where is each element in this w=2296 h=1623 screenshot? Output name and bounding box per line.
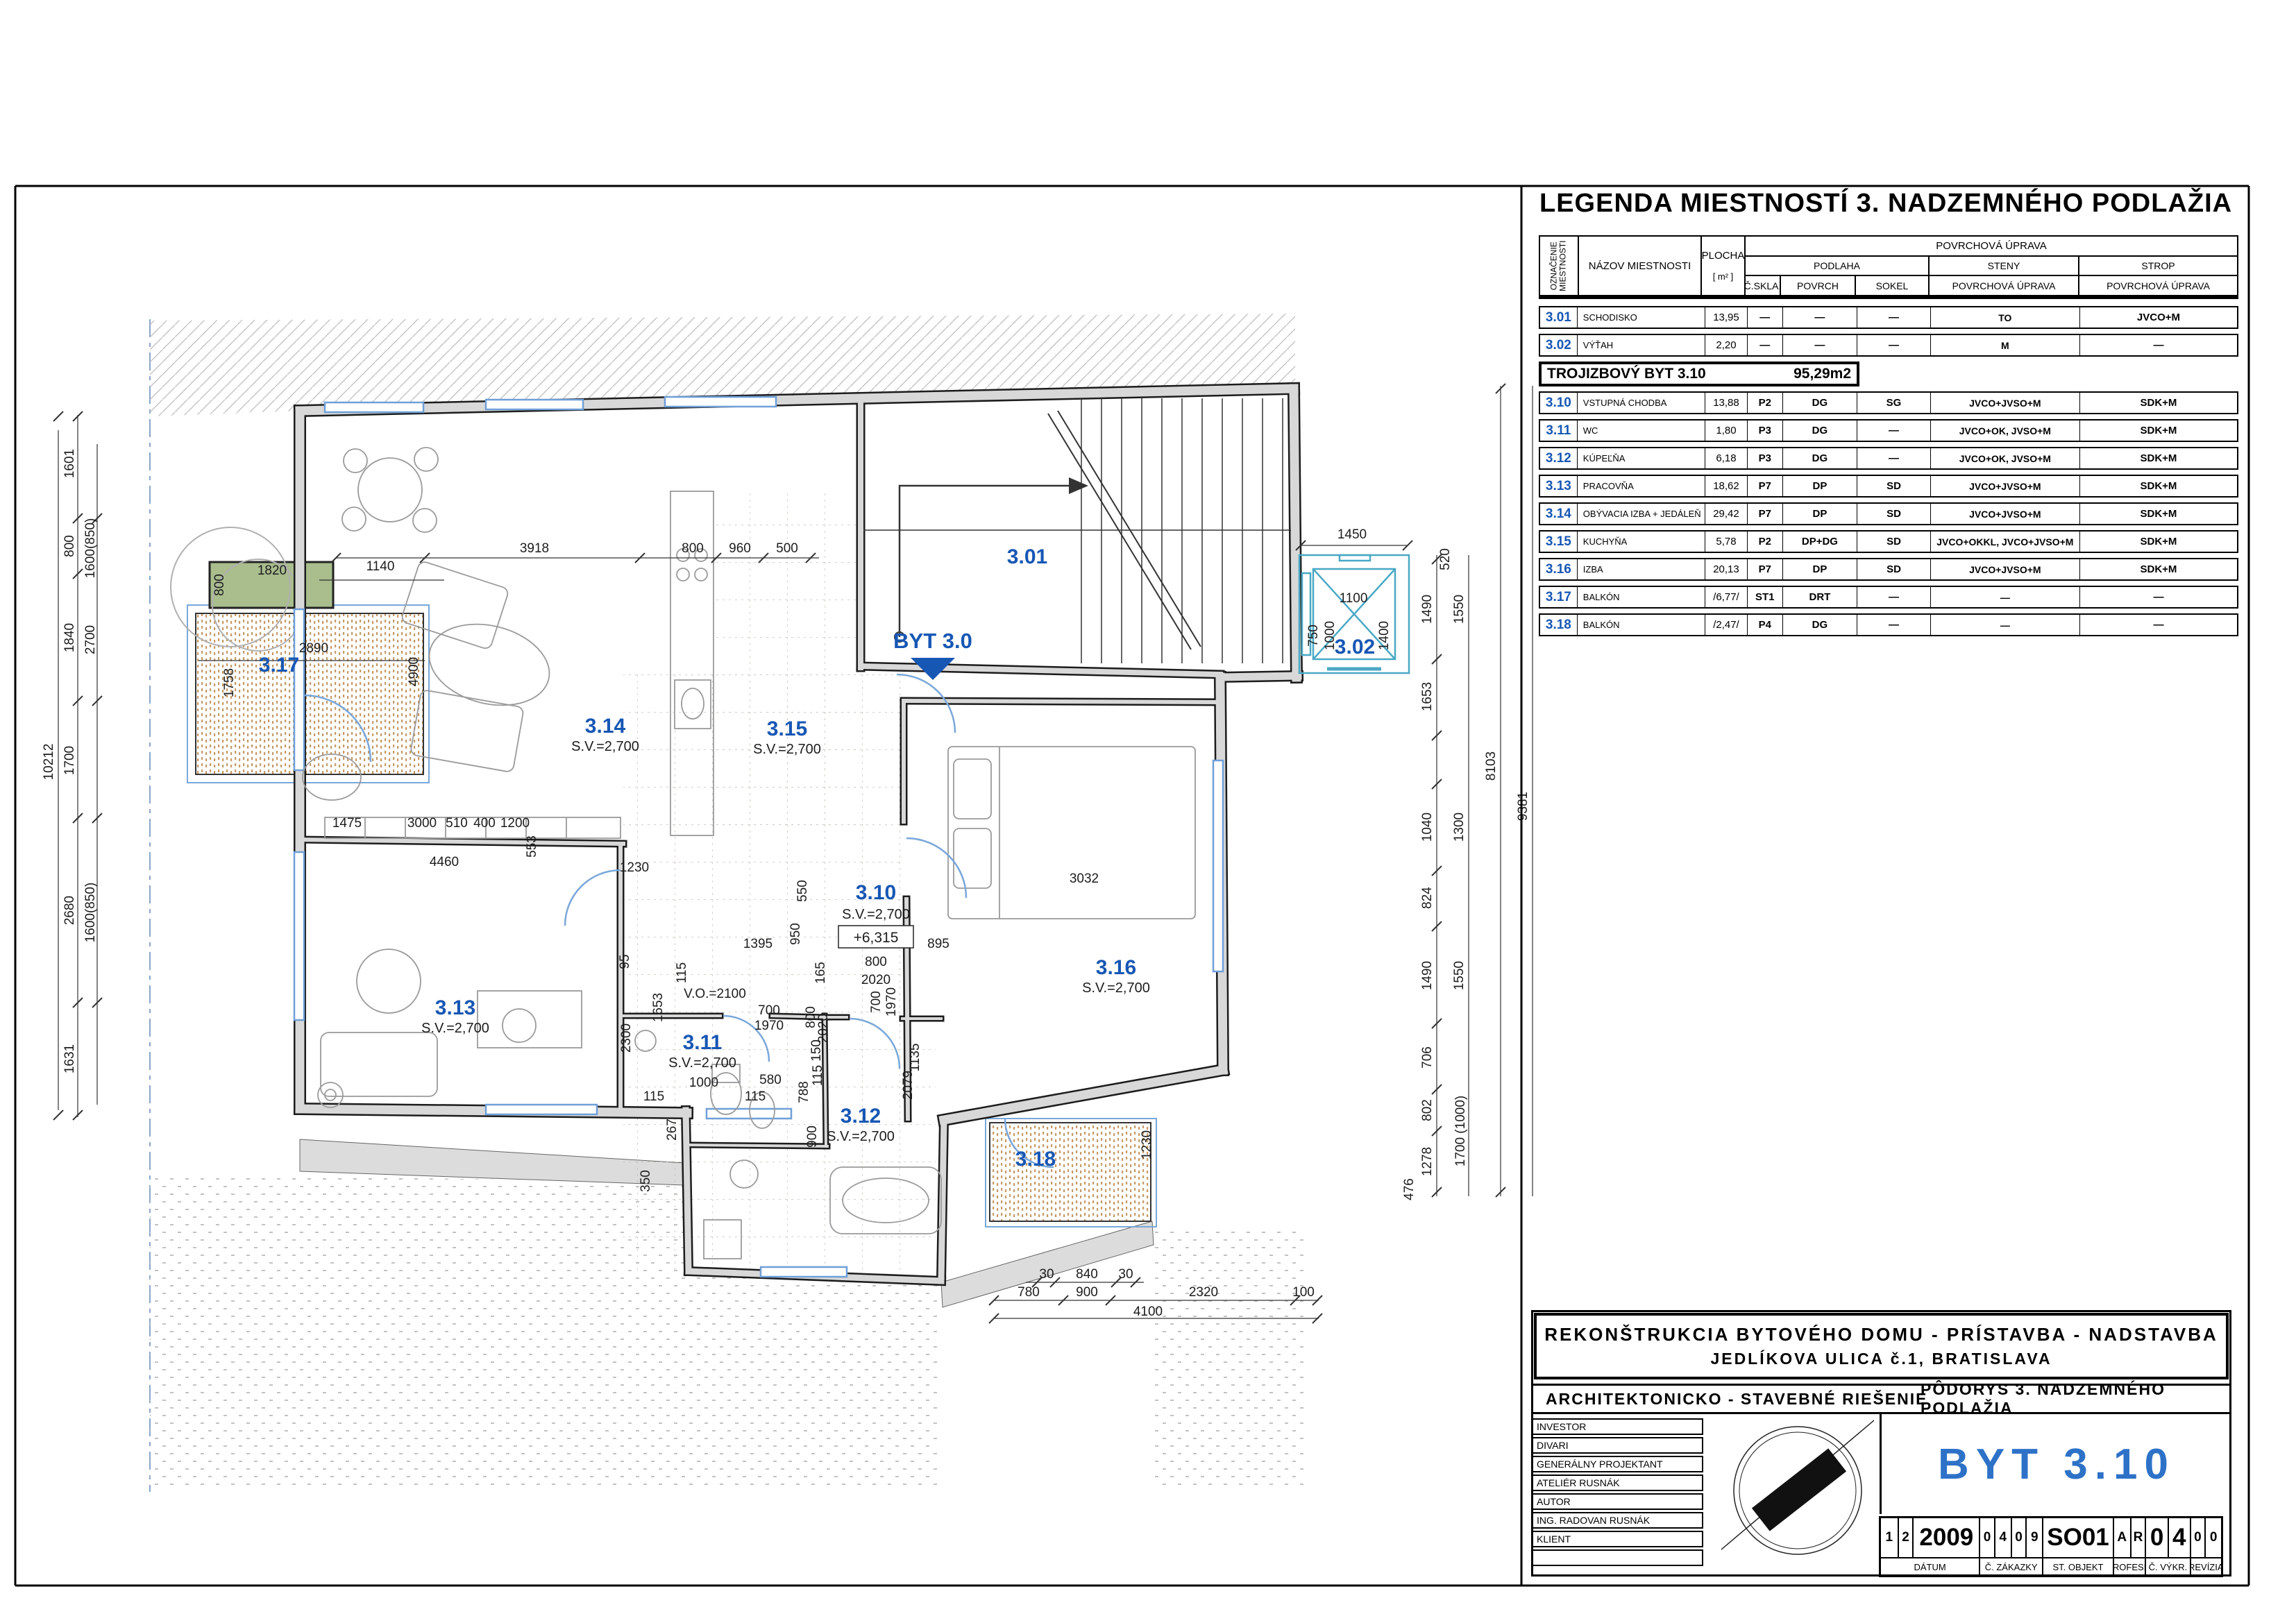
- dimension-label: 706: [1420, 1046, 1435, 1069]
- legend-cell: 29,42: [1705, 504, 1748, 524]
- dimension-label: 1550: [1452, 595, 1467, 624]
- dimension-label: 700: [758, 1003, 780, 1018]
- legend-row-3.14: 3.14OBÝVACIA IZBA + JEDÁLEŇ29,42P7DPSDJV…: [1539, 502, 2238, 525]
- legend-cell: —: [1748, 307, 1783, 328]
- legend-row-3.02: 3.02VÝŤAH2,20———M—: [1539, 334, 2238, 357]
- dimension-label: 780: [1018, 1285, 1040, 1300]
- dimension-label: 800: [212, 574, 227, 596]
- info-row: [1531, 1549, 1703, 1566]
- dimension-label: 4460: [430, 855, 459, 869]
- legend-cell: P2: [1748, 393, 1783, 413]
- dimension-label: 9381: [1516, 792, 1530, 821]
- dimension-label: 4100: [1133, 1305, 1163, 1319]
- legend-table: OZNAČENIE MIESTNOSTI NÁZOV MIESTNOSTI PL…: [1539, 235, 2238, 641]
- dimension-label: 2300: [619, 1023, 634, 1053]
- room-label: 3.18: [1015, 1148, 1056, 1171]
- legend-cell: OBÝVACIA IZBA + JEDÁLEŇ: [1578, 504, 1705, 524]
- dimension-label: 824: [1420, 887, 1435, 909]
- col-ceiling: STROP: [2079, 257, 2237, 275]
- col-walls: STENY: [1930, 257, 2079, 275]
- room-label: 3.17: [259, 654, 299, 677]
- legend-cell: 3.16: [1540, 559, 1578, 579]
- band-area: 95,29m2: [1793, 366, 1851, 382]
- legend-cell: —: [1783, 307, 1858, 328]
- legend-cell: —: [1857, 615, 1931, 635]
- room-label: 3.12: [841, 1105, 881, 1128]
- dimension-label: 1970: [884, 987, 899, 1017]
- band-label: TROJIZBOVÝ BYT 3.10: [1542, 366, 1706, 382]
- dimension-label: 960: [729, 541, 751, 556]
- dimension-label: 553: [525, 835, 539, 858]
- dimension-label: 1230: [1140, 1130, 1154, 1159]
- room-label: +6,315: [854, 930, 899, 946]
- couch: [321, 1033, 437, 1096]
- legend-cell: DP: [1783, 504, 1858, 524]
- legend-cell: P3: [1748, 448, 1783, 468]
- legend-cell: SCHODISKO: [1578, 307, 1705, 328]
- legend-cell: DG: [1783, 420, 1858, 441]
- legend-cell: /2,47/: [1705, 615, 1748, 635]
- legend-cell: DRT: [1783, 587, 1858, 607]
- dimension-label: 900: [1076, 1285, 1098, 1300]
- dimension-label: 1653: [651, 993, 666, 1022]
- dimension-label: 150: [809, 1039, 824, 1062]
- dimension-label: 350: [639, 1170, 653, 1192]
- dimension-label: 900: [805, 1125, 820, 1148]
- dimension-label: 3918: [520, 541, 549, 556]
- legend-row-3.13: 3.13PRACOVŇA18,62P7DPSDJVCO+JVSO+MSDK+M: [1539, 475, 2238, 498]
- section-band: ARCHITEKTONICKO - STAVEBNÉ RIEŠENIE PÔDO…: [1531, 1384, 2231, 1414]
- dimension-label: 2320: [1189, 1285, 1218, 1300]
- dimension-label: 2020: [861, 973, 890, 987]
- dimension-label: 4900: [407, 657, 421, 686]
- legend-cell: 3.18: [1540, 615, 1578, 635]
- dimension-label: 400: [473, 816, 496, 831]
- legend-row-3.18: 3.18BALKÓN/2,47/P4DG———: [1539, 613, 2238, 636]
- legend-cell: 3.12: [1540, 448, 1578, 468]
- legend-cell: SD: [1857, 559, 1931, 579]
- legend-title: LEGENDA MIESTNOSTÍ 3. NADZEMNÉHO PODLAŽI…: [1539, 189, 2232, 219]
- info-row: GENERÁLNY PROJEKTANT: [1531, 1456, 1703, 1472]
- legend-cell: BALKÓN: [1578, 587, 1705, 607]
- room-label: S.V.=2,700: [842, 907, 910, 922]
- col-area-unit: [ m² ]: [1713, 271, 1734, 282]
- dimension-label: 1820: [258, 563, 287, 578]
- dimension-label: 1758: [222, 668, 237, 697]
- legend-cell: KUCHYŇA: [1578, 532, 1705, 552]
- walkway-band: [941, 1221, 1154, 1307]
- room-label: S.V.=2,700: [421, 1021, 489, 1036]
- legend-cell: DP: [1783, 476, 1858, 496]
- room-label: S.V.=2,700: [1082, 980, 1150, 996]
- dimension-label: 750: [1306, 624, 1321, 647]
- info-row: ATELIÉR RUSNÁK: [1531, 1475, 1703, 1491]
- dimension-label: 510: [446, 816, 468, 831]
- dimension-label: 1653: [1420, 682, 1435, 711]
- dimension-label: 1200: [500, 816, 530, 831]
- legend-cell: JVCO+JVSO+M: [1931, 559, 2080, 579]
- legend-cell: —: [1857, 420, 1931, 441]
- apartment-band: TROJIZBOVÝ BYT 3.1095,29m2: [1539, 362, 1859, 386]
- staircase: [863, 398, 1291, 663]
- col-area: PLOCHA: [1702, 250, 1745, 262]
- code-cell: 1: [1881, 1518, 1899, 1557]
- legend-cell: ST1: [1748, 587, 1783, 607]
- dimension-label: 788: [797, 1081, 811, 1103]
- dimension-label: 1700: [62, 746, 77, 775]
- code-cell: 4: [2169, 1518, 2191, 1557]
- room-label: 3.16: [1096, 956, 1136, 979]
- info-row: AUTOR: [1531, 1493, 1703, 1510]
- pillow: [954, 829, 991, 888]
- legend-row-3.01: 3.01SCHODISKO13,95———TOJVCO+M: [1539, 306, 2238, 329]
- dimension-label: 1300: [1452, 813, 1467, 842]
- legend-cell: 2,20: [1705, 335, 1748, 355]
- legend-cell: —: [1931, 587, 2080, 607]
- legend-cell: —: [1857, 307, 1931, 328]
- dimension-label: 1395: [743, 937, 773, 951]
- legend-cell: JVCO+M: [2080, 307, 2237, 328]
- dimension-label: 1631: [62, 1044, 77, 1073]
- legend-row-3.16: 3.16IZBA20,13P7DPSDJVCO+JVSO+MSDK+M: [1539, 558, 2238, 581]
- apartment-title: BYT 3.10: [1938, 1440, 2175, 1489]
- dimension-label: 2079: [901, 1071, 915, 1100]
- legend-cell: SG: [1857, 393, 1931, 413]
- dimension-label: 1700 (1000): [1453, 1096, 1468, 1166]
- dimension-label: 476: [1402, 1178, 1417, 1200]
- dimension-label: 115: [643, 1089, 664, 1104]
- legend-cell: 20,13: [1705, 559, 1748, 579]
- col-walls-finish: POVRCHOVÁ ÚPRAVA: [1930, 276, 2079, 295]
- dimension-label: 1000: [689, 1076, 718, 1090]
- legend-cell: SD: [1857, 504, 1931, 524]
- legend-cell: VSTUPNÁ CHODBA: [1578, 393, 1705, 413]
- dimension-label: 1600(850): [83, 883, 98, 943]
- info-row: DIVARI: [1531, 1437, 1703, 1454]
- dining-table: [358, 458, 422, 522]
- legend-cell: 6,18: [1705, 448, 1748, 468]
- drawing-name: PÔDORYS 3. NADZEMNÉHO PODLAŽIA: [1921, 1380, 2229, 1418]
- dimension-label: 1040: [1420, 813, 1435, 842]
- dimension-label: 30: [1039, 1267, 1054, 1282]
- dimension-label: 1601: [62, 449, 77, 478]
- legend-cell: P7: [1748, 476, 1783, 496]
- legend-cell: IZBA: [1578, 559, 1705, 579]
- dimension-label: 115: [745, 1089, 766, 1104]
- col-floor-layer: Č.SKLA.: [1746, 276, 1781, 295]
- dimension-label: 165: [813, 962, 828, 984]
- legend-cell: M: [1931, 335, 2080, 355]
- dimension-label: 1550: [1452, 961, 1467, 990]
- legend-cell: P7: [1748, 559, 1783, 579]
- room-label: 3.02: [1335, 636, 1375, 658]
- legend-cell: PRACOVŇA: [1578, 476, 1705, 496]
- code-group-label: PROFESIA: [2114, 1558, 2146, 1575]
- dimension-label: 1230: [620, 860, 649, 875]
- dimension-label: 1100: [1340, 591, 1368, 606]
- room-label: S.V.=2,700: [827, 1129, 895, 1144]
- dimension-label: 2700: [83, 625, 98, 654]
- code-group-label: ST. OBJEKT: [2043, 1558, 2114, 1575]
- code-cell: 2: [1899, 1518, 1914, 1557]
- title-info-rows: INVESTORDIVARIGENERÁLNY PROJEKTANTATELIÉ…: [1531, 1418, 1703, 1568]
- legend-cell: P4: [1748, 615, 1783, 635]
- col-floor-skirt: SOKEL: [1856, 276, 1930, 295]
- room-label: 3.11: [683, 1031, 723, 1054]
- room-label: 3.14: [585, 715, 626, 738]
- legend-row-3.11: 3.11WC1,80P3DG—JVCO+OK, JVSO+MSDK+M: [1539, 419, 2238, 442]
- code-cell: 0: [2146, 1518, 2169, 1557]
- legend-cell: JVCO+JVSO+M: [1931, 393, 2080, 413]
- dimension-label: 267: [665, 1119, 679, 1141]
- architect-stamp: [1721, 1416, 1874, 1568]
- drawing-code-strip: 1220090409SO01AR0400 DÁTUMČ. ZÁKAZKYST. …: [1879, 1516, 2223, 1577]
- dimension-label: V.O.=2100: [684, 987, 746, 1001]
- legend-cell: 3.02: [1540, 335, 1578, 355]
- legend-cell: SDK+M: [2080, 504, 2237, 524]
- dimension-label: 10212: [42, 744, 56, 781]
- legend-cell: 13,95: [1705, 307, 1748, 328]
- dimension-label: 3032: [1070, 872, 1099, 886]
- dimension-label: 840: [1076, 1267, 1098, 1282]
- code-cells: 1220090409SO01AR0400: [1881, 1518, 2221, 1557]
- code-cell: 4: [1995, 1518, 2012, 1557]
- legend-cell: P2: [1748, 532, 1783, 552]
- code-group-label: Č. VÝKR.: [2146, 1558, 2191, 1575]
- code-labels: DÁTUMČ. ZÁKAZKYST. OBJEKTPROFESIAČ. VÝKR…: [1881, 1557, 2221, 1575]
- dimension-label: 1490: [1420, 961, 1435, 990]
- legend-cell: JVCO+OK, JVSO+M: [1931, 448, 2080, 468]
- project-name: REKONŠTRUKCIA BYTOVÉHO DOMU - PRÍSTAVBA …: [1544, 1324, 2218, 1345]
- legend-cell: —: [1931, 615, 2080, 635]
- balcony-318: [990, 1123, 1151, 1221]
- legend-cell: —: [2080, 615, 2237, 635]
- legend-cell: P7: [1748, 504, 1783, 524]
- legend-cell: SD: [1857, 476, 1931, 496]
- room-label: S.V.=2,700: [571, 739, 639, 754]
- dimension-label: 1490: [1420, 595, 1435, 624]
- legend-cell: 3.11: [1540, 420, 1578, 441]
- legend-row-3.12: 3.12KÚPEĽŇA6,18P3DG—JVCO+OK, JVSO+MSDK+M: [1539, 447, 2238, 470]
- code-group-label: REVÍZIA: [2191, 1558, 2221, 1575]
- drawing-sheet: 1021216018001600(850)1840270017002680160…: [0, 0, 2296, 1623]
- legend-cell: JVCO+JVSO+M: [1931, 504, 2080, 524]
- site-hatch-bottom-right: [1154, 1225, 1305, 1490]
- dimension-label: 895: [927, 937, 949, 951]
- dimension-label: 95: [618, 954, 632, 969]
- info-row: ING. RADOVAN RUSNÁK: [1531, 1512, 1703, 1529]
- legend-cell: —: [1748, 335, 1783, 355]
- legend-cell: P3: [1748, 420, 1783, 441]
- legend-cell: BALKÓN: [1578, 615, 1705, 635]
- legend-cell: SDK+M: [2080, 393, 2237, 413]
- dimension-label: 1400: [1377, 621, 1392, 650]
- legend-cell: WC: [1578, 420, 1705, 441]
- legend-cell: 3.15: [1540, 532, 1578, 552]
- code-cell: 0: [2206, 1518, 2221, 1557]
- legend-cell: 5,78: [1705, 532, 1748, 552]
- apartment-title-box: BYT 3.10: [1880, 1414, 2231, 1514]
- legend-cell: KÚPEĽŇA: [1578, 448, 1705, 468]
- legend-row-3.10: 3.10VSTUPNÁ CHODBA13,88P2DGSGJVCO+JVSO+M…: [1539, 391, 2238, 414]
- legend-cell: —: [1857, 587, 1931, 607]
- cabinet-row: [325, 817, 621, 838]
- legend-cell: TO: [1931, 307, 2080, 328]
- col-floor: PODLAHA: [1746, 257, 1930, 275]
- rug: [357, 949, 421, 1013]
- legend-cell: VÝŤAH: [1578, 335, 1705, 355]
- legend-cell: JVCO+OKKL, JVCO+JVSO+M: [1931, 532, 2080, 552]
- legend-cell: SDK+M: [2080, 476, 2237, 496]
- discipline-label: ARCHITEKTONICKO - STAVEBNÉ RIEŠENIE: [1533, 1390, 1927, 1409]
- legend-cell: SDK+M: [2080, 420, 2237, 441]
- room-label: 3.10: [856, 881, 896, 904]
- code-cell: R: [2132, 1518, 2147, 1557]
- col-surface: POVRCHOVÁ ÚPRAVA: [1746, 237, 2237, 257]
- dimension-label: 550: [795, 880, 810, 902]
- legend-header: OZNAČENIE MIESTNOSTI NÁZOV MIESTNOSTI PL…: [1539, 235, 2238, 299]
- dimension-label: 700: [869, 991, 884, 1013]
- legend-row-3.15: 3.15KUCHYŇA5,78P2DP+DGSDJVCO+OKKL, JVCO+…: [1539, 530, 2238, 553]
- dimension-label: 2890: [299, 641, 328, 656]
- legend-cell: SDK+M: [2080, 532, 2237, 552]
- dimension-label: 1840: [62, 623, 77, 652]
- dimension-label: 1278: [1420, 1147, 1435, 1176]
- bed: [948, 747, 1195, 919]
- legend-cell: DG: [1783, 615, 1858, 635]
- col-ceiling-finish: POVRCHOVÁ ÚPRAVA: [2079, 276, 2237, 295]
- legend-cell: DG: [1783, 393, 1858, 413]
- sofa: [410, 690, 524, 773]
- legend-cell: DP: [1783, 559, 1858, 579]
- room-label: 3.15: [767, 717, 807, 740]
- dimension-label: 1450: [1337, 527, 1367, 542]
- legend-cell: SDK+M: [2080, 559, 2237, 579]
- dimension-label: 1475: [332, 816, 362, 831]
- code-cell: 0: [2012, 1518, 2027, 1557]
- legend-cell: JVCO+OK, JVSO+M: [1931, 420, 2080, 441]
- room-label: S.V.=2,700: [753, 742, 821, 757]
- dimension-label: 3000: [407, 816, 437, 831]
- legend-cell: —: [2080, 587, 2237, 607]
- stamp-bar: [1752, 1448, 1846, 1531]
- room-label: 3.13: [435, 996, 475, 1019]
- project-title-box: REKONŠTRUKCIA BYTOVÉHO DOMU - PRÍSTAVBA …: [1534, 1313, 2229, 1379]
- room-label: S.V.=2,700: [668, 1055, 736, 1071]
- dimension-label: 1600(850): [83, 518, 98, 579]
- legend-cell: /6,77/: [1705, 587, 1748, 607]
- legend-cell: SDK+M: [2080, 448, 2237, 468]
- legend-cell: 18,62: [1705, 476, 1748, 496]
- dimension-label: 1135: [908, 1044, 922, 1072]
- dimension-label: 1970: [754, 1019, 784, 1033]
- legend-cell: DG: [1783, 448, 1858, 468]
- dimension-label: 800: [62, 535, 77, 557]
- legend-cell: DP+DG: [1783, 532, 1858, 552]
- room-label: BYT 3.0: [893, 629, 972, 653]
- legend-cell: —: [1857, 448, 1931, 468]
- dimension-label: 800: [682, 541, 704, 556]
- desk-chair: [503, 1009, 536, 1042]
- col-designation: OZNAČENIE MIESTNOSTI: [1550, 240, 1568, 291]
- legend-cell: 13,88: [1705, 393, 1748, 413]
- code-group-label: Č. ZÁKAZKY: [1980, 1558, 2043, 1575]
- legend-cell: JVCO+JVSO+M: [1931, 476, 2080, 496]
- code-group-label: DÁTUM: [1881, 1558, 1980, 1575]
- dimension-label: 30: [1118, 1267, 1133, 1282]
- dimension-label: 800: [865, 955, 887, 969]
- code-cell: A: [2114, 1518, 2132, 1557]
- legend-cell: —: [2080, 335, 2237, 355]
- legend-rows: 3.01SCHODISKO13,95———TOJVCO+M3.02VÝŤAH2,…: [1539, 306, 2238, 636]
- legend-cell: SD: [1857, 532, 1931, 552]
- col-room-name: NÁZOV MIESTNOSTI: [1579, 237, 1702, 295]
- info-row: INVESTOR: [1531, 1418, 1703, 1435]
- pillow: [954, 759, 991, 819]
- dimension-label: 2020: [816, 1014, 831, 1043]
- legend-cell: 3.01: [1540, 307, 1578, 328]
- legend-cell: 3.17: [1540, 587, 1578, 607]
- dimension-label: 950: [788, 923, 803, 945]
- code-cell: 2009: [1914, 1518, 1980, 1557]
- dimension-label: 100: [1292, 1285, 1315, 1300]
- dimension-label: 500: [776, 541, 798, 556]
- project-address: JEDLÍKOVA ULICA č.1, BRATISLAVA: [1710, 1350, 2052, 1368]
- code-cell: 0: [1980, 1518, 1995, 1557]
- code-cell: 9: [2027, 1518, 2043, 1557]
- legend-cell: 3.13: [1540, 476, 1578, 496]
- dimension-label: 580: [759, 1073, 782, 1087]
- dimension-label: 520: [1438, 548, 1453, 570]
- code-cell: 0: [2191, 1518, 2206, 1557]
- dimension-label: 1140: [366, 559, 395, 574]
- dimension-label: 115: [675, 962, 689, 983]
- legend-cell: —: [1857, 335, 1931, 355]
- dimension-label: 115: [811, 1065, 825, 1086]
- legend-cell: 3.14: [1540, 504, 1578, 524]
- stair-direction-arrow: [1069, 477, 1088, 494]
- legend-cell: —: [1783, 335, 1858, 355]
- legend-cell: 3.10: [1540, 393, 1578, 413]
- legend-cell: 1,80: [1705, 420, 1748, 441]
- col-floor-finish: POVRCH: [1781, 276, 1856, 295]
- code-cell: SO01: [2043, 1518, 2114, 1557]
- info-row: KLIENT: [1531, 1531, 1703, 1547]
- dimension-label: 802: [1420, 1099, 1435, 1121]
- room-label: 3.01: [1007, 545, 1047, 568]
- dimension-label: 2680: [62, 896, 77, 925]
- dimension-label: 8103: [1484, 751, 1499, 781]
- legend-row-3.17: 3.17BALKÓN/6,77/ST1DRT———: [1539, 586, 2238, 609]
